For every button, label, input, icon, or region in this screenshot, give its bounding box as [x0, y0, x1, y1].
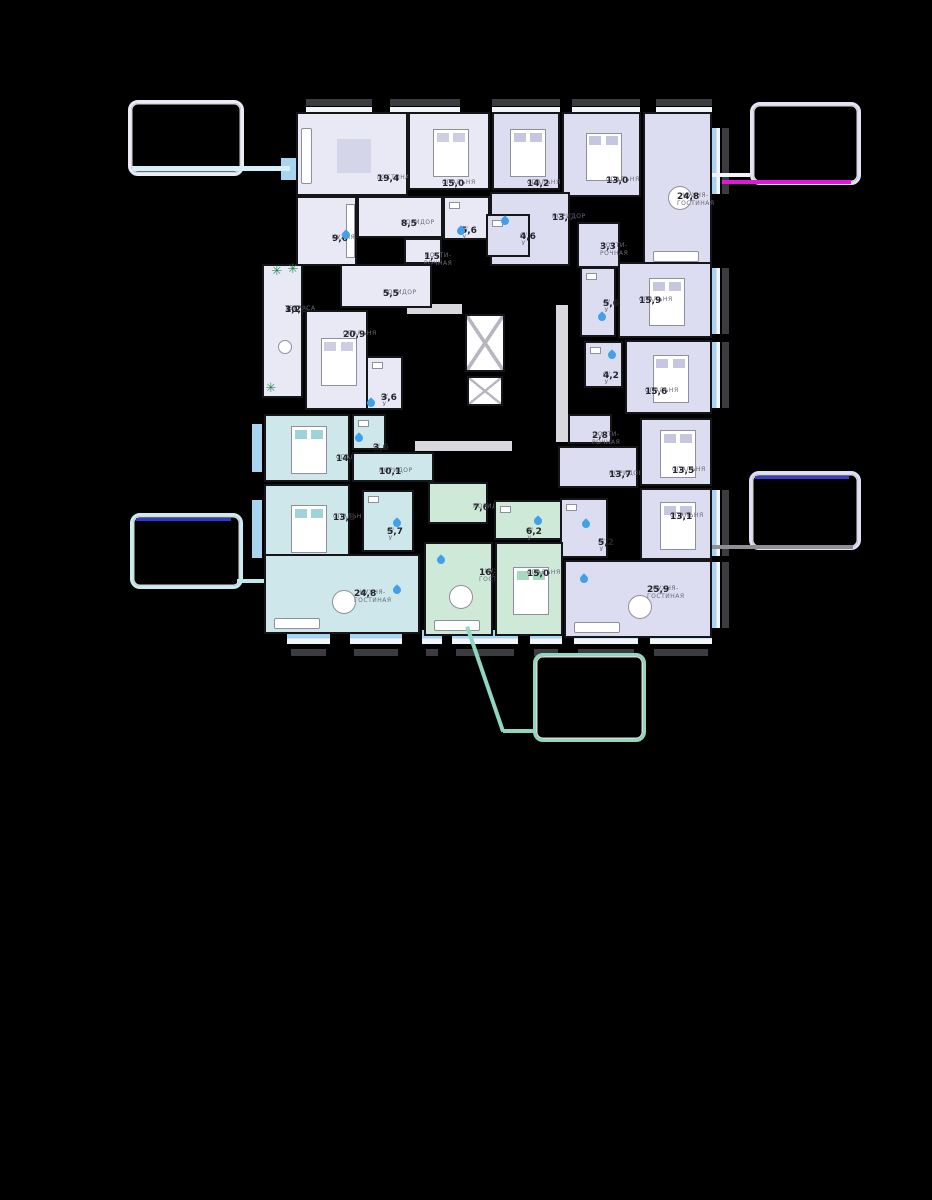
room-name: СПАЛЬНЯ — [527, 179, 561, 187]
room-area-secondary: 10,6 — [285, 305, 307, 315]
room-bedroom-20-9[interactable]: СПАЛЬНЯ20,9 — [305, 310, 368, 410]
bed-furniture — [291, 505, 327, 553]
facade-edge-bar — [722, 128, 729, 194]
room-name: КУХНЯ- ГОСТИНАЯ — [354, 589, 392, 604]
facade-edge-bar — [291, 649, 326, 656]
room-area: 3,3 — [600, 242, 616, 252]
facade-edge-bar — [492, 99, 560, 106]
room-bedroom-15-9[interactable]: СПАЛЬНЯ15,9 — [618, 262, 712, 338]
plant-icon: ✳ — [264, 382, 278, 396]
room-bathroom-5-6[interactable]: С/У5,6 — [580, 267, 616, 337]
room-corridor-5-5[interactable]: КОРИДОР5,5 — [340, 264, 432, 308]
room-area: 25,9 — [647, 585, 669, 595]
apartment-callout-mid-left[interactable] — [130, 513, 243, 589]
room-name: КОРИДОР — [401, 219, 435, 227]
room-name: С/У — [520, 232, 527, 247]
callout-connector-line — [136, 518, 231, 521]
room-area: 2,8 — [592, 431, 608, 441]
room-name: КУХНЯ- ГОСТИНАЯ — [647, 585, 685, 600]
room-bedroom-14-2[interactable]: СПАЛЬНЯ14,2 — [492, 112, 560, 190]
room-kitchen_living-24-8[interactable]: КУХНЯ- ГОСТИНАЯ24,8 — [643, 112, 712, 267]
balcony-window — [711, 128, 720, 194]
plant-icon: ✳ — [270, 265, 284, 279]
room-name: КОРИДОР — [609, 470, 643, 478]
room-bedroom-15-0[interactable]: СПАЛЬНЯ15,0 — [495, 542, 563, 636]
sink-furniture — [449, 202, 460, 209]
room-area: 1,5 — [424, 252, 440, 262]
room-area: 13,0 — [552, 213, 574, 223]
facade-edge-bar — [390, 99, 460, 106]
room-area: 13,3 — [333, 513, 355, 523]
facade-edge-bar — [722, 562, 729, 628]
room-area: 3,6 — [381, 393, 397, 403]
room-bedroom-13-1[interactable]: СПАЛЬНЯ13,1 — [640, 488, 712, 560]
room-bathroom-5-6[interactable]: С/У5,6 — [443, 196, 490, 240]
room-bedroom-13-5[interactable]: СПАЛЬНЯ13,5 — [640, 418, 712, 486]
sink-furniture — [586, 273, 597, 280]
room-corridor-8-5[interactable]: КОРИДОР8,5 — [357, 196, 443, 238]
bed-furniture — [321, 338, 357, 386]
bed-furniture — [510, 129, 546, 177]
facade-edge-bar — [722, 342, 729, 408]
sink-furniture — [500, 506, 511, 513]
room-name: С/У — [387, 527, 394, 542]
dining-table-furniture — [628, 595, 652, 619]
callout-connector-line — [503, 729, 535, 733]
elevator-shaft — [465, 314, 505, 372]
room-bathroom-3-6[interactable]: С/У3,6 — [352, 414, 386, 450]
sink-furniture — [358, 420, 369, 427]
room-bedroom-15-6[interactable]: СПАЛЬНЯ15,6 — [625, 340, 712, 414]
room-living-19-4[interactable]: ГОСТИНАЯ19,4 — [296, 112, 408, 196]
dining-table-furniture — [449, 585, 473, 609]
bed-furniture — [653, 355, 689, 403]
room-name: СПАЛЬНЯ — [343, 330, 377, 338]
sink-furniture — [590, 347, 601, 354]
sofa-furniture — [434, 620, 480, 631]
room-area: 5,7 — [387, 527, 403, 537]
facade-edge-bar — [656, 99, 712, 106]
room-area: 10,1 — [379, 467, 401, 477]
elevator-shaft — [467, 376, 503, 406]
floor-plan-canvas: ГОСТИНАЯ19,4СПАЛЬНЯ15,0КУХНЯ9,6КОРИДОР8,… — [0, 0, 932, 1200]
room-name: ПОСТИ- РОЧНАЯ — [592, 431, 620, 446]
bed-furniture — [660, 502, 696, 550]
room-name: КОРИДОР — [379, 467, 413, 475]
bed-furniture — [433, 129, 469, 177]
balcony-window — [252, 424, 262, 472]
sofa-furniture — [274, 618, 320, 629]
room-corridor-7-6[interactable]: КОРИДОР7,6 — [428, 482, 488, 524]
sofa-furniture — [574, 622, 620, 633]
room-name: С/У — [381, 393, 388, 408]
room-area: 5,2 — [598, 538, 614, 548]
balcony-window — [711, 268, 720, 334]
room-laundry-2-8[interactable]: ПОСТИ- РОЧНАЯ2,8 — [568, 414, 612, 444]
core-wall — [556, 305, 568, 442]
room-bedroom-14-1[interactable]: СПАЛЬНЯ14,1 — [264, 414, 350, 482]
room-area: 7,6 — [473, 503, 489, 513]
plant-icon: ✳ — [286, 263, 300, 277]
room-kitchen_living-25-9[interactable]: КУХНЯ- ГОСТИНАЯ25,9 — [564, 560, 712, 638]
callout-connector-line — [755, 476, 849, 479]
core-wall — [415, 441, 512, 451]
room-bathroom-6-2[interactable]: С/У6,2 — [494, 500, 562, 540]
room-name: С/У — [603, 371, 610, 386]
room-area: 13,7 — [609, 470, 631, 480]
bed-furniture — [513, 567, 549, 615]
room-area: 15,0 — [442, 179, 464, 189]
room-area: 4,2 — [603, 371, 619, 381]
room-area: 3,2 — [285, 305, 301, 315]
callout-connector-line — [132, 166, 290, 171]
room-bedroom-13-0[interactable]: СПАЛЬНЯ13,0 — [562, 112, 641, 197]
callout-connector-line — [712, 173, 750, 177]
room-bathroom-4-2[interactable]: С/У4,2 — [584, 341, 623, 388]
facade-edge-bar — [306, 99, 372, 106]
sofa-furniture — [653, 251, 699, 262]
sink-furniture — [372, 362, 383, 369]
room-name: КОРИДОР — [552, 213, 586, 221]
room-corridor-10-1[interactable]: КОРИДОР10,1 — [352, 452, 434, 482]
balcony-window — [711, 562, 720, 628]
sink-furniture — [566, 504, 577, 511]
apartment-callout-top-right[interactable] — [750, 102, 861, 185]
facade-edge-bar — [426, 649, 438, 656]
sofa-furniture — [301, 128, 312, 184]
bed-furniture — [660, 430, 696, 478]
room-area: 8,5 — [401, 219, 417, 229]
facade-edge-bar — [354, 649, 398, 656]
dining-table-furniture — [332, 590, 356, 614]
room-area: 24,8 — [354, 589, 376, 599]
callout-connector-line — [237, 579, 264, 583]
facade-edge-bar — [654, 649, 708, 656]
room-area: 6,2 — [526, 527, 542, 537]
room-area: 5,5 — [383, 289, 399, 299]
terrace-table-furniture — [278, 340, 292, 354]
room-bedroom-15-0[interactable]: СПАЛЬНЯ15,0 — [408, 112, 490, 190]
room-area: 5,6 — [603, 299, 619, 309]
dining-table-furniture — [668, 186, 692, 210]
sink-furniture — [368, 496, 379, 503]
bed-furniture — [291, 426, 327, 474]
bed-furniture — [649, 278, 685, 326]
room-name: ПОСТИ- РОЧНАЯ — [600, 242, 628, 257]
room-terrace-3-2[interactable]: ТЕРРАСА3,210,6 — [262, 264, 303, 398]
room-name: КОРИДОР — [383, 289, 417, 297]
facade-edge-bar — [456, 649, 514, 656]
room-name: С/У — [603, 299, 610, 314]
room-name: СПАЛЬНЯ — [442, 179, 476, 187]
callout-connector-line — [722, 180, 851, 184]
apartment-callout-mid-right[interactable] — [749, 471, 861, 550]
room-bathroom-5-7[interactable]: С/У5,7 — [362, 490, 414, 552]
room-laundry-3-3[interactable]: ПОСТИ- РОЧНАЯ3,3 — [577, 222, 620, 268]
room-laundry-1-5[interactable]: ПОСТИ- РОЧНАЯ1,5 — [404, 238, 442, 264]
room-area: 19,4 — [377, 174, 399, 184]
facade-edge-bar — [722, 268, 729, 334]
balcony-window — [711, 342, 720, 408]
apartment-callout-bottom[interactable] — [533, 653, 646, 742]
bed-furniture — [586, 133, 622, 181]
apartment-callout-top-left[interactable] — [128, 100, 244, 176]
room-corridor-13-7[interactable]: КОРИДОР13,7 — [558, 446, 638, 488]
room-name: С/У — [598, 538, 605, 553]
rug-furniture — [337, 139, 371, 173]
room-area: 14,2 — [527, 179, 549, 189]
callout-connector-line — [712, 545, 853, 549]
room-name: С/У — [526, 527, 533, 542]
facade-edge-bar — [572, 99, 640, 106]
balcony-window — [252, 500, 262, 558]
room-kitchen_living-16-2[interactable]: КУХНЯ- ГОСТИНАЯ16,2 — [424, 542, 493, 636]
